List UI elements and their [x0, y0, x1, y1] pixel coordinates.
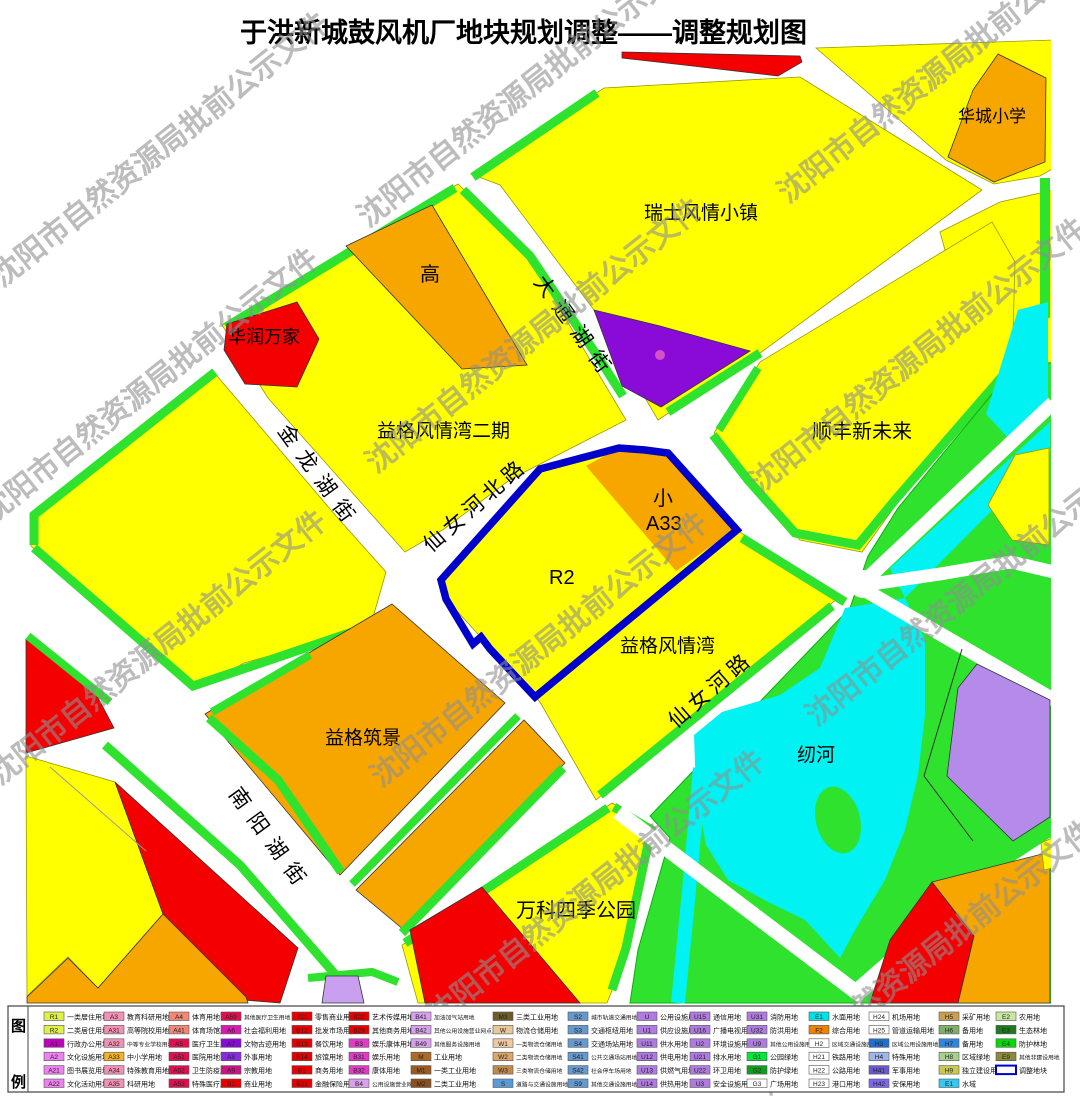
- svg-text:U3: U3: [696, 1081, 705, 1088]
- svg-text:娱乐用地: 娱乐用地: [372, 1053, 400, 1062]
- svg-text:F2: F2: [815, 1027, 823, 1034]
- svg-text:铁路用地: 铁路用地: [832, 1053, 860, 1062]
- svg-text:H24: H24: [873, 1014, 885, 1021]
- svg-text:A41: A41: [173, 1027, 185, 1034]
- svg-text:康体用地: 康体用地: [372, 1066, 400, 1075]
- svg-text:供水用地: 供水用地: [660, 1039, 688, 1048]
- svg-text:城市轨道交通用地: 城市轨道交通用地: [591, 1014, 638, 1022]
- svg-text:特殊教育用地: 特殊教育用地: [127, 1066, 169, 1075]
- svg-text:A9: A9: [227, 1068, 235, 1075]
- svg-text:M1: M1: [416, 1068, 425, 1075]
- svg-text:教育科研用地: 教育科研用地: [127, 1013, 169, 1022]
- svg-text:A21: A21: [48, 1068, 60, 1075]
- svg-text:其他非建设用地: 其他非建设用地: [1019, 1054, 1060, 1062]
- svg-text:R2: R2: [50, 1027, 59, 1034]
- svg-text:A51: A51: [173, 1054, 185, 1061]
- svg-text:H6: H6: [945, 1027, 954, 1034]
- svg-text:B42: B42: [415, 1027, 427, 1034]
- svg-text:A3: A3: [110, 1014, 118, 1021]
- svg-text:供热用地: 供热用地: [660, 1080, 688, 1089]
- svg-text:娱乐康体用地: 娱乐康体用地: [372, 1039, 414, 1048]
- svg-text:生态林地: 生态林地: [1019, 1026, 1047, 1035]
- svg-text:E9: E9: [1002, 1054, 1010, 1061]
- svg-text:安保用地: 安保用地: [892, 1080, 920, 1089]
- svg-text:纫河: 纫河: [797, 744, 835, 766]
- svg-text:A53: A53: [173, 1081, 185, 1088]
- svg-text:其他商务用地: 其他商务用地: [372, 1026, 414, 1035]
- svg-text:水域: 水域: [962, 1080, 976, 1089]
- svg-text:社会停车场用地: 社会停车场用地: [591, 1067, 632, 1075]
- svg-text:E2: E2: [1002, 1014, 1010, 1021]
- svg-text:U1: U1: [643, 1027, 652, 1034]
- svg-text:华城小学: 华城小学: [958, 107, 1026, 126]
- svg-text:H21: H21: [813, 1054, 825, 1061]
- svg-text:U22: U22: [694, 1068, 706, 1075]
- svg-text:军事用地: 军事用地: [892, 1066, 920, 1075]
- svg-text:例: 例: [11, 1073, 26, 1091]
- svg-text:U15: U15: [694, 1014, 706, 1021]
- svg-text:H41: H41: [873, 1068, 885, 1075]
- svg-text:A8: A8: [227, 1054, 235, 1061]
- svg-text:其他交通设施用地: 其他交通设施用地: [591, 1081, 638, 1089]
- svg-text:综合用地: 综合用地: [832, 1026, 860, 1035]
- svg-text:A32: A32: [108, 1041, 120, 1048]
- svg-text:社会福利用地: 社会福利用地: [244, 1026, 286, 1035]
- svg-text:U11: U11: [641, 1041, 653, 1048]
- svg-text:U32: U32: [751, 1027, 763, 1034]
- svg-text:文化设施用地: 文化设施用地: [67, 1053, 109, 1062]
- svg-text:行政办公用地: 行政办公用地: [67, 1039, 109, 1048]
- svg-text:公路用地: 公路用地: [832, 1066, 860, 1075]
- svg-text:工业用地: 工业用地: [434, 1053, 462, 1062]
- svg-text:消防用地: 消防用地: [770, 1013, 798, 1022]
- svg-text:一类工业用地: 一类工业用地: [434, 1066, 476, 1075]
- svg-text:三类工业用地: 三类工业用地: [516, 1013, 558, 1022]
- svg-text:H23: H23: [813, 1081, 825, 1088]
- svg-text:G3: G3: [753, 1081, 762, 1088]
- svg-text:高: 高: [420, 263, 440, 286]
- svg-text:中小学用地: 中小学用地: [127, 1053, 162, 1062]
- svg-text:广场用地: 广场用地: [770, 1080, 798, 1089]
- svg-text:E3: E3: [1002, 1027, 1010, 1034]
- svg-text:A5: A5: [175, 1041, 183, 1048]
- svg-text:H42: H42: [873, 1081, 885, 1088]
- svg-text:G2: G2: [753, 1068, 762, 1075]
- svg-text:S9: S9: [574, 1081, 582, 1088]
- svg-text:区域绿地: 区域绿地: [962, 1053, 990, 1062]
- svg-text:防护绿地: 防护绿地: [770, 1066, 798, 1075]
- svg-text:调整地块: 调整地块: [1019, 1066, 1047, 1075]
- svg-text:R1: R1: [50, 1014, 59, 1021]
- svg-text:高等院校用地: 高等院校用地: [127, 1026, 169, 1035]
- svg-text:H8: H8: [945, 1054, 954, 1061]
- svg-text:A33: A33: [108, 1054, 120, 1061]
- svg-text:防护林地: 防护林地: [1019, 1039, 1047, 1048]
- svg-text:备用地: 备用地: [962, 1039, 983, 1048]
- svg-text:公共交通场站用地: 公共交通场站用地: [591, 1054, 638, 1062]
- svg-text:H25: H25: [873, 1027, 885, 1034]
- svg-text:排水用地: 排水用地: [713, 1053, 741, 1062]
- svg-text:公园绿地: 公园绿地: [770, 1053, 798, 1062]
- svg-text:A2: A2: [50, 1054, 58, 1061]
- svg-text:A6: A6: [227, 1027, 235, 1034]
- svg-text:U9: U9: [753, 1041, 762, 1048]
- svg-text:供电用地: 供电用地: [660, 1053, 688, 1062]
- svg-text:文化活动用地: 文化活动用地: [67, 1080, 109, 1089]
- svg-text:二类居住用地: 二类居住用地: [67, 1026, 109, 1035]
- svg-text:机场用地: 机场用地: [892, 1013, 920, 1022]
- svg-text:S41: S41: [572, 1054, 584, 1061]
- svg-text:医院用地: 医院用地: [192, 1053, 220, 1062]
- svg-text:商务用地: 商务用地: [315, 1066, 343, 1075]
- svg-text:图书展览用地: 图书展览用地: [67, 1066, 109, 1075]
- svg-text:B4: B4: [355, 1081, 363, 1088]
- svg-text:其他服务设施用地: 其他服务设施用地: [434, 1040, 481, 1048]
- svg-text:B49: B49: [415, 1041, 427, 1048]
- svg-text:备用地: 备用地: [962, 1026, 983, 1035]
- svg-text:W: W: [500, 1027, 507, 1034]
- svg-text:U31: U31: [751, 1014, 763, 1021]
- svg-text:加油加气站用地: 加油加气站用地: [434, 1014, 475, 1022]
- svg-text:E1: E1: [945, 1081, 953, 1088]
- svg-text:B14: B14: [296, 1054, 308, 1061]
- svg-text:一类居住用地: 一类居住用地: [67, 1013, 109, 1022]
- svg-text:E1: E1: [815, 1014, 823, 1021]
- svg-text:H5: H5: [945, 1014, 954, 1021]
- svg-text:商业用地: 商业用地: [244, 1080, 272, 1089]
- svg-text:H9: H9: [945, 1068, 954, 1075]
- svg-text:B41: B41: [415, 1014, 427, 1021]
- svg-text:B29: B29: [353, 1027, 365, 1034]
- svg-text:W2: W2: [498, 1054, 508, 1061]
- svg-text:中等专业学校用地: 中等专业学校用地: [127, 1040, 174, 1048]
- svg-text:文物古迹用地: 文物古迹用地: [244, 1039, 286, 1048]
- svg-text:B3: B3: [355, 1041, 363, 1048]
- svg-text:S3: S3: [574, 1027, 582, 1034]
- svg-text:B2: B2: [298, 1068, 306, 1075]
- svg-text:B11: B11: [296, 1014, 307, 1021]
- svg-text:A22: A22: [48, 1081, 60, 1088]
- svg-text:B21: B21: [296, 1081, 308, 1088]
- svg-text:农用地: 农用地: [1019, 1013, 1040, 1022]
- svg-text:益格筑景: 益格筑景: [325, 727, 401, 749]
- svg-text:交通场站用地: 交通场站用地: [591, 1039, 633, 1048]
- svg-text:A7: A7: [227, 1041, 235, 1048]
- svg-text:三类物流仓储用地: 三类物流仓储用地: [516, 1067, 563, 1075]
- svg-text:一类物流仓储用地: 一类物流仓储用地: [516, 1040, 563, 1048]
- svg-text:餐饮用地: 餐饮用地: [315, 1039, 343, 1048]
- svg-text:科研用地: 科研用地: [127, 1080, 155, 1089]
- svg-text:M: M: [418, 1054, 423, 1061]
- svg-text:U14: U14: [641, 1081, 653, 1088]
- svg-text:M2: M2: [416, 1081, 425, 1088]
- svg-text:H2: H2: [815, 1041, 824, 1048]
- svg-text:E4: E4: [1002, 1041, 1010, 1048]
- svg-text:B31: B31: [353, 1054, 365, 1061]
- svg-text:H22: H22: [813, 1068, 825, 1075]
- svg-text:H4: H4: [875, 1054, 884, 1061]
- svg-text:水面用地: 水面用地: [832, 1013, 860, 1022]
- svg-text:A52: A52: [173, 1068, 185, 1075]
- svg-text:H7: H7: [945, 1041, 954, 1048]
- svg-text:外事用地: 外事用地: [244, 1053, 272, 1062]
- svg-text:物流仓储用地: 物流仓储用地: [516, 1026, 558, 1035]
- svg-text:U: U: [645, 1014, 650, 1021]
- svg-text:艺术传媒用地: 艺术传媒用地: [372, 1013, 414, 1022]
- svg-text:S2: S2: [574, 1014, 582, 1021]
- svg-text:U2: U2: [696, 1041, 705, 1048]
- svg-text:H3: H3: [875, 1041, 884, 1048]
- svg-text:环卫用地: 环卫用地: [713, 1066, 741, 1075]
- svg-text:S42: S42: [572, 1068, 584, 1075]
- svg-text:B1: B1: [227, 1081, 235, 1088]
- svg-text:M3: M3: [498, 1014, 507, 1021]
- svg-text:体育用地: 体育用地: [192, 1013, 220, 1022]
- svg-text:B12: B12: [296, 1027, 308, 1034]
- svg-text:旅馆用地: 旅馆用地: [315, 1053, 343, 1062]
- svg-text:U12: U12: [641, 1054, 653, 1061]
- svg-text:S: S: [501, 1081, 506, 1088]
- svg-text:管道运输用地: 管道运输用地: [892, 1026, 934, 1035]
- svg-text:A4: A4: [175, 1014, 183, 1021]
- svg-text:B13: B13: [296, 1041, 308, 1048]
- svg-text:通信用地: 通信用地: [713, 1013, 741, 1022]
- svg-text:二类工业用地: 二类工业用地: [434, 1080, 476, 1089]
- svg-text:U21: U21: [694, 1054, 706, 1061]
- svg-text:B32: B32: [353, 1068, 365, 1075]
- svg-text:A31: A31: [108, 1027, 120, 1034]
- svg-text:G1: G1: [753, 1054, 762, 1061]
- svg-text:道路与交通设施用地: 道路与交通设施用地: [516, 1081, 568, 1089]
- svg-text:宗教用地: 宗教用地: [244, 1066, 272, 1075]
- svg-text:W1: W1: [498, 1041, 508, 1048]
- svg-text:防洪用地: 防洪用地: [770, 1026, 798, 1035]
- svg-text:U13: U13: [641, 1068, 653, 1075]
- svg-text:二类物流仓储用地: 二类物流仓储用地: [516, 1054, 563, 1062]
- svg-text:益格风情湾: 益格风情湾: [620, 635, 715, 657]
- svg-text:W3: W3: [498, 1068, 508, 1075]
- svg-text:B22: B22: [353, 1014, 365, 1021]
- svg-text:A34: A34: [108, 1068, 120, 1075]
- svg-text:A35: A35: [108, 1081, 120, 1088]
- svg-text:U16: U16: [694, 1027, 706, 1034]
- svg-text:图: 图: [11, 1018, 26, 1035]
- svg-text:A1: A1: [50, 1041, 58, 1048]
- svg-text:特殊用地: 特殊用地: [892, 1053, 920, 1062]
- svg-text:R2: R2: [549, 567, 575, 589]
- svg-text:区域公用设施用地: 区域公用设施用地: [892, 1040, 939, 1048]
- svg-text:采矿用地: 采矿用地: [962, 1013, 990, 1022]
- svg-text:S4: S4: [574, 1041, 582, 1048]
- svg-text:小: 小: [653, 487, 673, 510]
- svg-text:交通枢纽用地: 交通枢纽用地: [591, 1026, 633, 1035]
- svg-text:A59: A59: [225, 1014, 237, 1021]
- svg-text:其他医疗卫生用地: 其他医疗卫生用地: [244, 1014, 291, 1022]
- svg-text:港口用地: 港口用地: [832, 1080, 860, 1089]
